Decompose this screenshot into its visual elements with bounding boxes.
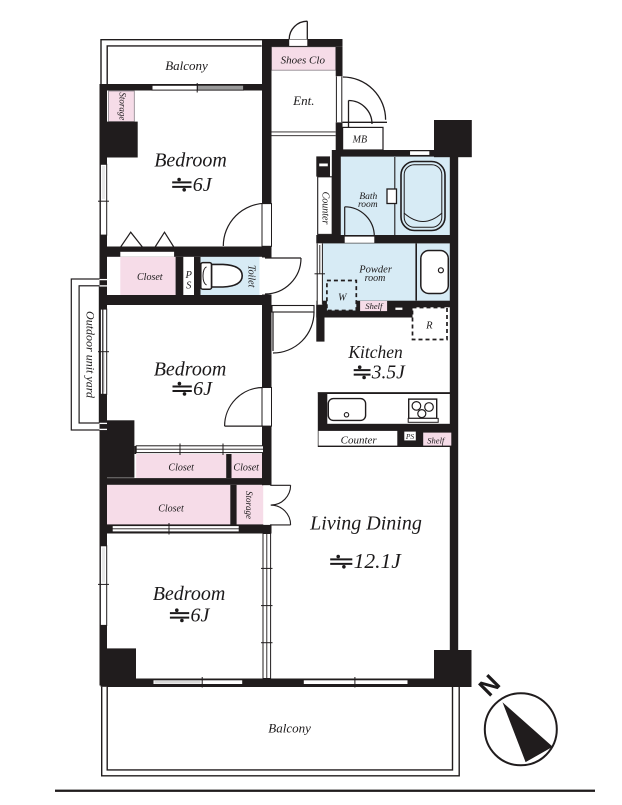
- svg-text:room: room: [358, 200, 378, 210]
- svg-text:Bedroom: Bedroom: [154, 149, 227, 171]
- svg-text:MB: MB: [352, 134, 367, 145]
- svg-text:6J: 6J: [191, 605, 211, 627]
- svg-text:Closet: Closet: [233, 463, 259, 474]
- svg-text:Closet: Closet: [158, 503, 184, 514]
- svg-text:6J: 6J: [193, 174, 213, 196]
- svg-text:Counter: Counter: [341, 435, 378, 447]
- svg-text:Living Dining: Living Dining: [309, 513, 422, 535]
- svg-text:Toilet: Toilet: [245, 265, 256, 288]
- svg-text:Ent.: Ent.: [292, 93, 314, 108]
- svg-text:Shoes Clo: Shoes Clo: [281, 55, 326, 67]
- svg-text:Bedroom: Bedroom: [153, 583, 226, 605]
- svg-text:Shelf: Shelf: [427, 436, 446, 446]
- svg-text:R: R: [425, 321, 433, 332]
- svg-text:Closet: Closet: [168, 463, 194, 474]
- svg-text:Shelf: Shelf: [365, 301, 384, 311]
- svg-text:6J: 6J: [193, 378, 213, 400]
- svg-text:Storage: Storage: [244, 491, 254, 519]
- svg-text:PS: PS: [405, 432, 415, 441]
- svg-text:S: S: [186, 280, 192, 291]
- svg-text:Kitchen: Kitchen: [347, 342, 403, 362]
- svg-text:Storage: Storage: [117, 92, 127, 120]
- svg-text:Closet: Closet: [137, 272, 163, 283]
- svg-text:Counter: Counter: [320, 192, 331, 225]
- svg-text:Outdoor unit yard: Outdoor unit yard: [83, 311, 97, 399]
- svg-text:Balcony: Balcony: [165, 58, 208, 73]
- svg-text:Bedroom: Bedroom: [154, 359, 227, 381]
- svg-text:Balcony: Balcony: [268, 720, 311, 735]
- svg-text:room: room: [365, 273, 386, 284]
- svg-text:3.5J: 3.5J: [371, 363, 406, 384]
- svg-text:12.1J: 12.1J: [354, 549, 403, 573]
